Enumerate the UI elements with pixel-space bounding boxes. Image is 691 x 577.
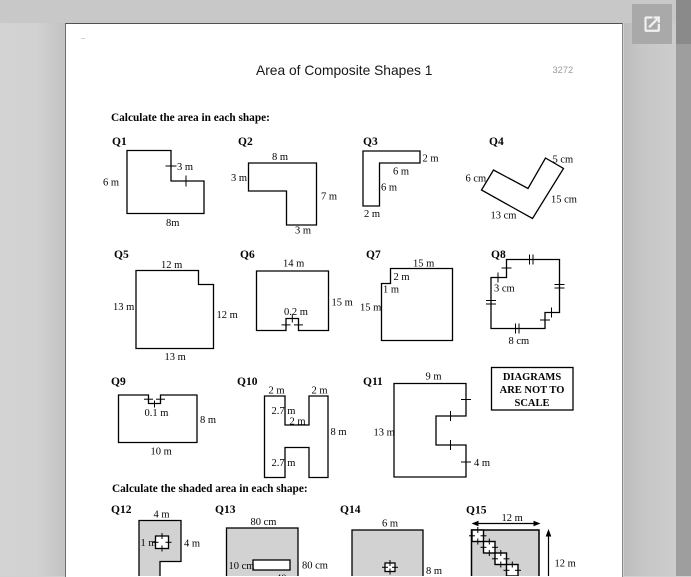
svg-text:12 m: 12 m: [555, 559, 576, 570]
svg-text:15 m: 15 m: [332, 298, 353, 309]
svg-text:8 m: 8 m: [272, 152, 288, 163]
svg-text:13 cm: 13 cm: [491, 211, 517, 222]
svg-text:4 m: 4 m: [474, 458, 490, 469]
svg-text:12 m: 12 m: [161, 260, 182, 271]
svg-text:2.7 m: 2.7 m: [272, 406, 296, 417]
svg-text:7 m: 7 m: [321, 192, 337, 203]
svg-text:13 m: 13 m: [165, 352, 186, 363]
svg-text:3 m: 3 m: [231, 173, 247, 184]
svg-text:10 m: 10 m: [151, 447, 172, 458]
svg-text:Q9: Q9: [111, 376, 126, 388]
svg-text:6 m: 6 m: [381, 183, 397, 194]
svg-text:8 m: 8 m: [331, 427, 347, 438]
svg-text:Q14: Q14: [340, 504, 361, 516]
svg-text:8 m: 8 m: [426, 566, 442, 576]
svg-text:10 cm: 10 cm: [229, 561, 255, 572]
svg-text:SCALE: SCALE: [514, 398, 549, 409]
svg-text:6 m: 6 m: [382, 519, 398, 530]
svg-text:1 m: 1 m: [141, 538, 157, 549]
svg-text:ARE NOT TO: ARE NOT TO: [500, 385, 565, 396]
svg-text:Q11: Q11: [363, 376, 383, 388]
svg-text:8m: 8m: [166, 218, 179, 229]
svg-text:1 m: 1 m: [383, 285, 399, 296]
svg-text:Q12: Q12: [111, 504, 132, 516]
svg-text:5 cm: 5 cm: [553, 155, 574, 166]
svg-text:3 m: 3 m: [295, 226, 311, 237]
svg-text:80 cm: 80 cm: [302, 561, 328, 572]
svg-text:Q3: Q3: [363, 136, 378, 148]
svg-text:15 m: 15 m: [413, 259, 434, 270]
svg-text:8 cm: 8 cm: [509, 336, 530, 347]
svg-text:2 m: 2 m: [312, 386, 328, 397]
svg-text:80 cm: 80 cm: [251, 517, 277, 528]
svg-text:2 m: 2 m: [423, 154, 439, 165]
svg-text:14 m: 14 m: [283, 259, 304, 270]
svg-text:2.7 m: 2.7 m: [272, 458, 296, 469]
svg-text:15 m: 15 m: [360, 303, 381, 314]
svg-text:4 m: 4 m: [184, 539, 200, 550]
svg-text:12 m: 12 m: [217, 310, 238, 321]
svg-text:0.1 m: 0.1 m: [145, 408, 169, 419]
svg-text:2 m: 2 m: [394, 272, 410, 283]
svg-text:2 m: 2 m: [269, 386, 285, 397]
svg-text:3 m: 3 m: [177, 162, 193, 173]
svg-text:13 m: 13 m: [113, 302, 134, 313]
svg-text:4 m: 4 m: [154, 510, 170, 521]
svg-text:8 m: 8 m: [200, 415, 216, 426]
svg-text:12 m: 12 m: [502, 513, 523, 524]
svg-text:DIAGRAMS: DIAGRAMS: [503, 372, 561, 383]
svg-text:Q5: Q5: [114, 249, 129, 261]
svg-text:Q2: Q2: [238, 136, 253, 148]
svg-text:Q4: Q4: [489, 136, 504, 148]
svg-text:Q8: Q8: [491, 249, 506, 261]
svg-text:15 cm: 15 cm: [551, 195, 577, 206]
svg-text:6 cm: 6 cm: [466, 174, 487, 185]
svg-text:Q7: Q7: [366, 249, 381, 261]
svg-text:3 cm: 3 cm: [494, 284, 515, 295]
svg-text:Q10: Q10: [237, 376, 258, 388]
svg-text:Q6: Q6: [240, 249, 255, 261]
svg-text:13 m: 13 m: [374, 428, 395, 439]
svg-text:Q1: Q1: [112, 136, 127, 148]
svg-text:Q13: Q13: [215, 504, 236, 516]
svg-text:0.2 m: 0.2 m: [284, 307, 308, 318]
svg-text:6 m: 6 m: [103, 178, 119, 189]
svg-text:6 m: 6 m: [393, 167, 409, 178]
svg-text:2 m: 2 m: [290, 417, 306, 428]
svg-text:2 m: 2 m: [364, 209, 380, 220]
svg-text:9 m: 9 m: [426, 372, 442, 383]
svg-text:Q15: Q15: [466, 505, 487, 517]
